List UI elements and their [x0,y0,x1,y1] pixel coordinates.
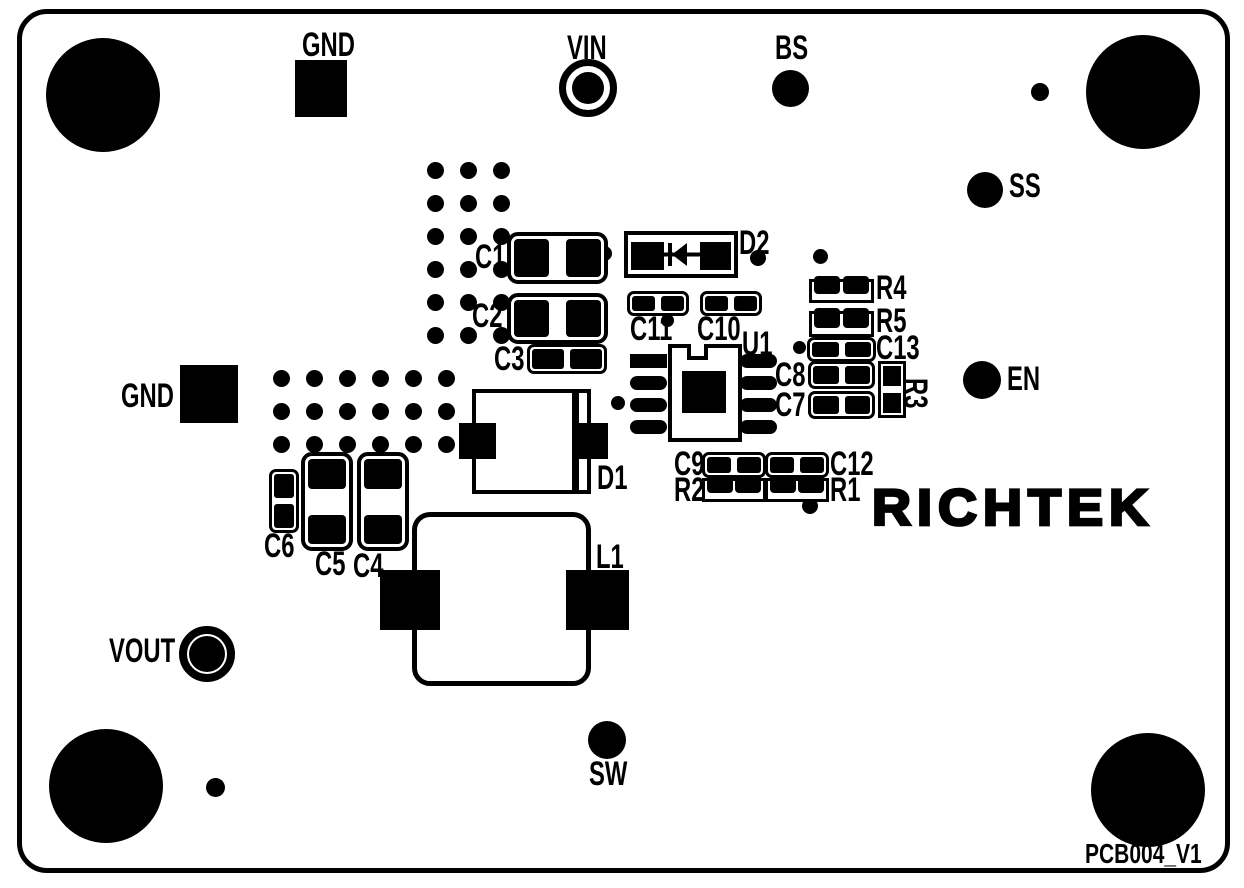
via-dot [372,436,389,453]
component-c4 [357,452,409,551]
r4-label: R4 [876,271,906,305]
c11-pad [632,296,655,311]
u1-pin-pad [630,376,667,390]
mounting-hole-bottom-right [1091,733,1205,847]
via-dot [493,195,510,212]
c4-pad [364,515,402,545]
u1-pin-pad [630,420,667,434]
u1-pin-pad [630,398,667,412]
via-dot [405,370,422,387]
via-dot [339,403,356,420]
via-dot [427,162,444,179]
vout-pad-drill [189,636,225,672]
l1-label: L1 [596,540,624,574]
via-dot [460,195,477,212]
vin-pad [559,59,617,117]
r4-pad [843,276,869,294]
via-dot [273,403,290,420]
c10-label: C10 [697,312,741,346]
diode-symbol-icon [660,239,702,270]
via-dot [611,396,625,410]
richtek-logo: RICHTEK [872,482,1154,533]
c2-body-gap [549,300,566,337]
component-c2 [507,293,608,344]
c4-pad [364,459,402,489]
c5-pad [308,459,346,489]
sw-label: SW [589,757,627,791]
u1-die-pad [682,371,726,413]
c5-body-gap [308,489,346,515]
via-dot [405,436,422,453]
c13-label: C13 [876,331,920,365]
u1-pin1-notch [687,344,708,360]
r4-pad [814,276,840,294]
via-dot [405,403,422,420]
u1-pin-pad [630,354,667,368]
c3-pad [532,349,564,369]
pcb-board: GND VIN BS SS EN GND VOUT SW C1 C2 C3 [0,0,1244,888]
r2-pad [735,475,761,493]
component-r1 [765,478,829,502]
pcb-version-text: PCB004_V1 [1085,840,1202,868]
via-dot [460,162,477,179]
via-dot [372,403,389,420]
c7-pad [845,396,871,414]
c11-pad [661,296,684,311]
component-l1 [412,512,591,686]
c13-pad [812,342,839,357]
c2-label: C2 [472,299,502,333]
d1-label: D1 [597,461,627,495]
c5-label: C5 [315,547,345,581]
c6-pad [274,504,294,528]
via-dot [372,370,389,387]
c8-pad [813,366,839,384]
c8-pad [845,366,871,384]
c9-pad [737,457,761,473]
r2-pad [707,475,733,493]
via-dot [438,403,455,420]
r3-label: R3 [898,378,932,408]
via-dot [306,370,323,387]
d1-pad [577,423,608,459]
via-dot [339,370,356,387]
vout-label: VOUT [109,634,175,668]
component-r2 [702,478,766,502]
l1-pad [566,570,629,630]
vin-pad-drill [572,72,604,104]
c13-body-gap [839,342,845,357]
en-label: EN [1007,362,1040,396]
component-r5 [809,311,874,337]
u1-pin-pad [740,398,777,412]
mounting-hole-top-right [1086,35,1200,149]
c10-pad [734,296,757,311]
c6-label: C6 [264,529,294,563]
via-dot [793,341,806,354]
component-c3 [527,344,607,374]
component-c13 [807,337,876,362]
via-dot [427,195,444,212]
gnd-top-label: GND [302,28,355,62]
component-d1 [472,389,591,494]
c7-pad [813,396,839,414]
c9-pad [707,457,731,473]
gnd-left-label: GND [121,379,174,413]
u1-pin-pad [740,420,777,434]
r1-pad [798,475,824,493]
c4-body-gap [364,489,402,515]
c5-pad [308,515,346,545]
c2-pad [514,300,549,337]
r5-pad [843,308,869,328]
via-dot [438,436,455,453]
r1-pad [770,475,796,493]
via-dot [339,436,356,453]
c7-body-gap [839,396,845,414]
via-dot [427,228,444,245]
u1-pin-pad [740,354,777,368]
d2-cathode-pad [700,242,731,270]
l1-pad [380,570,440,630]
c4-label: C4 [353,549,383,583]
c8-body-gap [839,366,845,384]
c13-pad [845,342,872,357]
c1-body-gap [549,239,566,277]
c6-pad [274,474,294,498]
sw-pad [588,721,626,759]
via-dot [427,261,444,278]
via-dot [306,403,323,420]
gnd-left-pad [180,365,238,423]
component-c7 [808,391,875,419]
mounting-hole-bottom-left [49,729,163,843]
c3-pad [570,349,602,369]
r2-label: R2 [674,473,704,507]
r1-label: R1 [830,473,860,507]
d1-pad [459,423,496,459]
component-c1 [507,232,608,284]
ss-label: SS [1009,169,1041,203]
c10-pad [705,296,728,311]
component-d2 [624,231,738,278]
via-dot [438,370,455,387]
via-dot [427,327,444,344]
ss-pad [967,172,1003,208]
c2-pad [566,300,601,337]
mounting-hole-top-left [46,38,160,152]
u1-pin-pad [740,376,777,390]
d2-label: D2 [739,226,769,260]
component-u1 [668,344,742,442]
via-dot [273,370,290,387]
component-r4 [809,279,874,303]
c1-pad [514,239,549,277]
component-c5 [301,452,353,551]
gnd-top-pad [295,60,347,117]
component-c8 [808,361,875,389]
r5-pad [814,308,840,328]
en-pad [963,361,1001,399]
via-dot [1031,83,1049,101]
c12-pad [800,457,824,473]
via-dot [813,249,828,264]
via-dot [493,162,510,179]
via-dot [427,294,444,311]
c12-pad [770,457,794,473]
vout-pad [179,626,235,682]
c7-label: C7 [775,388,805,422]
bs-pad [772,70,809,107]
c11-label: C11 [630,312,672,346]
c1-pad [566,239,601,277]
c1-label: C1 [475,240,505,274]
bs-label: BS [775,31,808,65]
component-c6 [269,469,299,533]
c3-label: C3 [494,342,524,376]
via-dot [273,436,290,453]
via-dot [206,778,225,797]
via-dot [306,436,323,453]
